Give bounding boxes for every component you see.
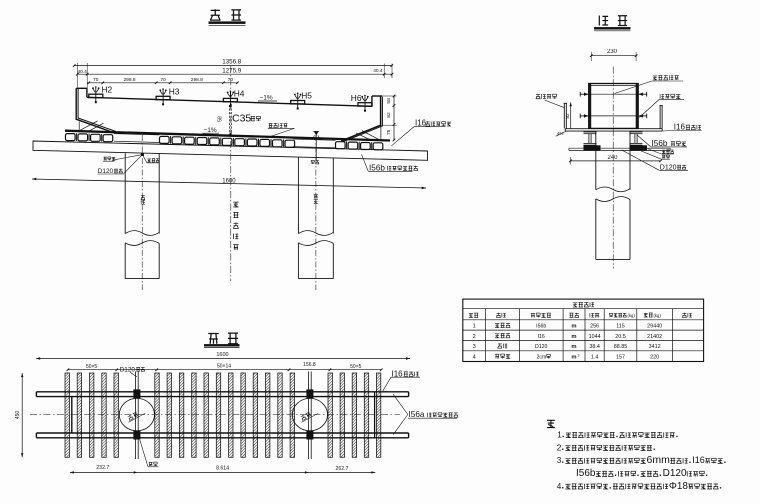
svg-text:2: 2 <box>473 334 476 340</box>
svg-text:230: 230 <box>607 49 618 55</box>
svg-text:20.5: 20.5 <box>615 334 626 340</box>
svg-text:H3: H3 <box>169 87 180 97</box>
svg-text:1.4: 1.4 <box>591 355 599 361</box>
svg-text:232.7: 232.7 <box>96 465 109 471</box>
svg-text:1: 1 <box>557 431 562 440</box>
svg-text:50×14: 50×14 <box>217 364 231 370</box>
svg-text:I56b: I56b <box>369 163 385 172</box>
svg-text:40.4: 40.4 <box>78 69 88 75</box>
svg-text:I16: I16 <box>415 119 427 128</box>
svg-text:29440: 29440 <box>647 324 662 330</box>
svg-text:8.614: 8.614 <box>216 465 229 471</box>
svg-text:262.7: 262.7 <box>336 466 349 472</box>
svg-text:40.4: 40.4 <box>373 68 383 74</box>
svg-text:1600: 1600 <box>222 178 236 184</box>
svg-text:6mm: 6mm <box>647 454 671 466</box>
svg-text:1275.9: 1275.9 <box>222 68 241 75</box>
svg-text:50×5: 50×5 <box>350 364 361 370</box>
svg-text:1044: 1044 <box>589 334 601 340</box>
svg-text:157: 157 <box>616 355 625 361</box>
svg-text:88.85: 88.85 <box>614 344 628 350</box>
svg-text:58: 58 <box>386 98 392 104</box>
svg-text:m: m <box>571 355 576 361</box>
svg-text:70: 70 <box>93 77 99 83</box>
svg-text:4: 4 <box>557 482 562 491</box>
svg-text:4: 4 <box>473 355 476 361</box>
svg-text:H6: H6 <box>351 93 362 103</box>
svg-text:2: 2 <box>557 443 562 452</box>
svg-text:I16: I16 <box>692 455 705 465</box>
svg-text:298.8: 298.8 <box>123 77 135 83</box>
svg-text:H2: H2 <box>102 84 113 94</box>
svg-text:(kg): (kg) <box>628 313 636 318</box>
svg-text:1600: 1600 <box>216 352 228 358</box>
svg-text:I56b: I56b <box>536 324 546 330</box>
svg-text:3: 3 <box>578 353 580 357</box>
svg-text:450: 450 <box>15 411 21 420</box>
svg-text:220: 220 <box>650 355 659 361</box>
svg-text:70: 70 <box>160 77 166 83</box>
svg-text:298.8: 298.8 <box>191 77 203 83</box>
svg-text:m: m <box>571 334 576 340</box>
svg-text:240: 240 <box>607 155 618 161</box>
svg-text:m: m <box>571 324 576 330</box>
svg-text:2cm: 2cm <box>537 355 547 361</box>
svg-text:(kg): (kg) <box>654 313 662 318</box>
svg-text:1356.8: 1356.8 <box>222 58 241 65</box>
svg-text:21402: 21402 <box>647 334 662 340</box>
svg-text:−1%: −1% <box>260 95 273 102</box>
svg-text:50×5: 50×5 <box>86 364 97 370</box>
svg-text:D120: D120 <box>663 468 687 479</box>
svg-text:−1%: −1% <box>204 127 217 134</box>
svg-text:C35: C35 <box>232 113 251 125</box>
svg-text:3: 3 <box>557 456 562 465</box>
svg-text:82: 82 <box>565 113 571 119</box>
svg-text:3: 3 <box>473 344 476 350</box>
svg-text:H4: H4 <box>234 89 245 99</box>
svg-text:156.8: 156.8 <box>303 362 316 368</box>
svg-text:I16: I16 <box>538 334 545 340</box>
svg-text:3412: 3412 <box>649 344 661 350</box>
svg-text:115: 115 <box>616 324 625 330</box>
svg-text:82: 82 <box>386 112 392 118</box>
svg-text:256: 256 <box>590 324 599 330</box>
svg-text:I56b: I56b <box>576 468 596 479</box>
svg-text:m: m <box>571 344 576 350</box>
svg-text:75: 75 <box>386 129 392 135</box>
svg-text:D120: D120 <box>535 344 548 350</box>
svg-text:38.4: 38.4 <box>589 344 600 350</box>
svg-text:1: 1 <box>473 324 476 330</box>
svg-text:Φ18: Φ18 <box>669 481 689 492</box>
svg-text:H5: H5 <box>301 91 312 101</box>
svg-text:58: 58 <box>218 116 224 122</box>
svg-text:D120: D120 <box>120 366 136 373</box>
svg-text:I56a: I56a <box>409 410 425 419</box>
